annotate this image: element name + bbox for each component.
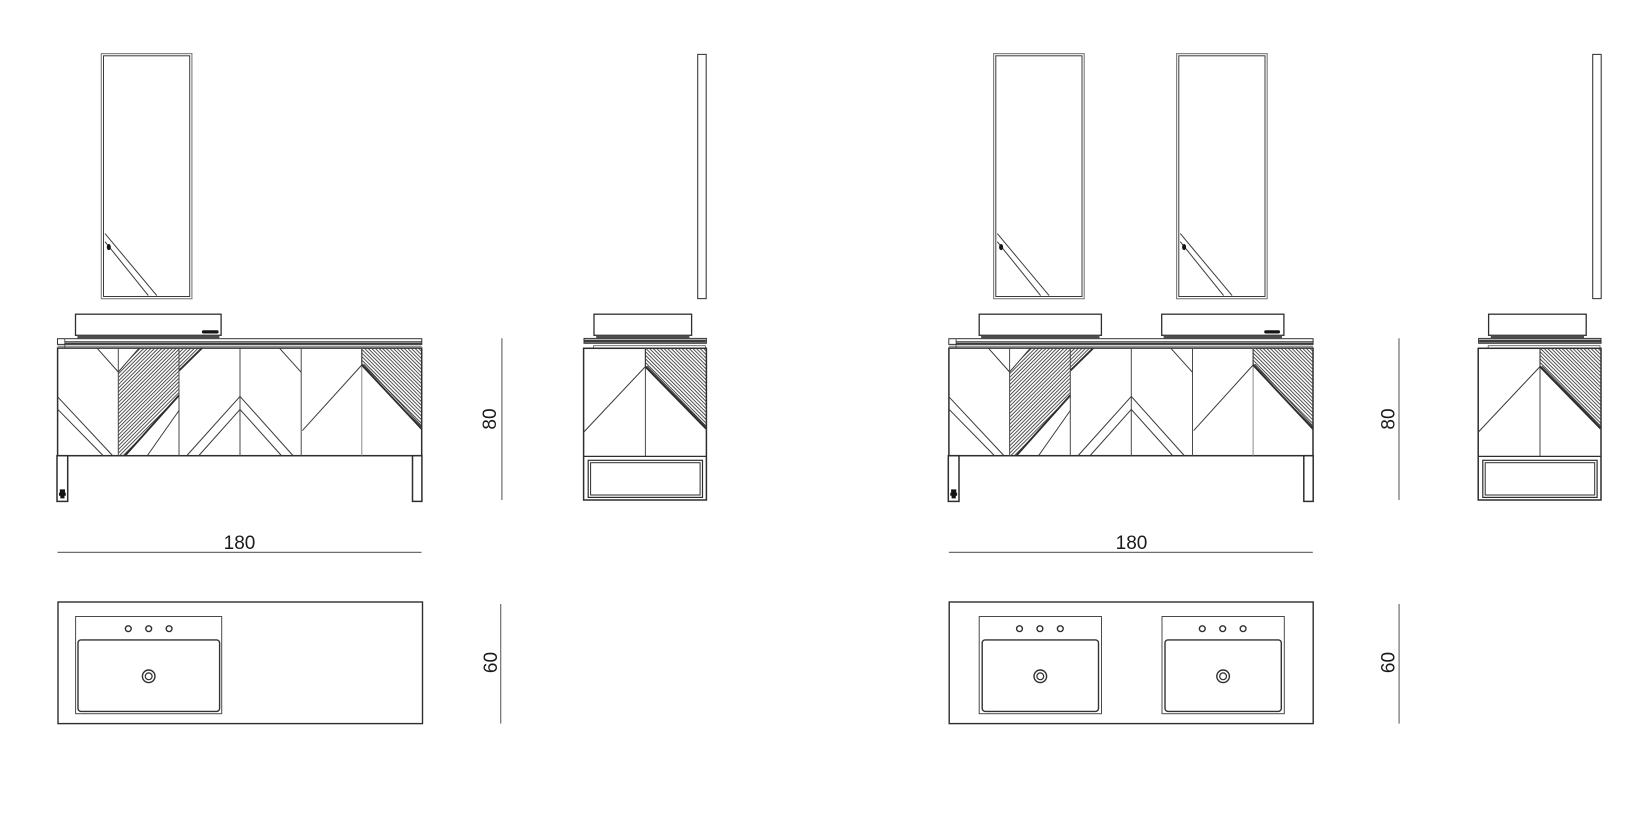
svg-text:60: 60 — [481, 652, 502, 673]
svg-text:80: 80 — [1379, 408, 1400, 429]
svg-text:60: 60 — [1379, 652, 1400, 673]
svg-text:180: 180 — [224, 533, 256, 554]
svg-text:80: 80 — [480, 408, 501, 429]
svg-text:180: 180 — [1116, 533, 1148, 554]
